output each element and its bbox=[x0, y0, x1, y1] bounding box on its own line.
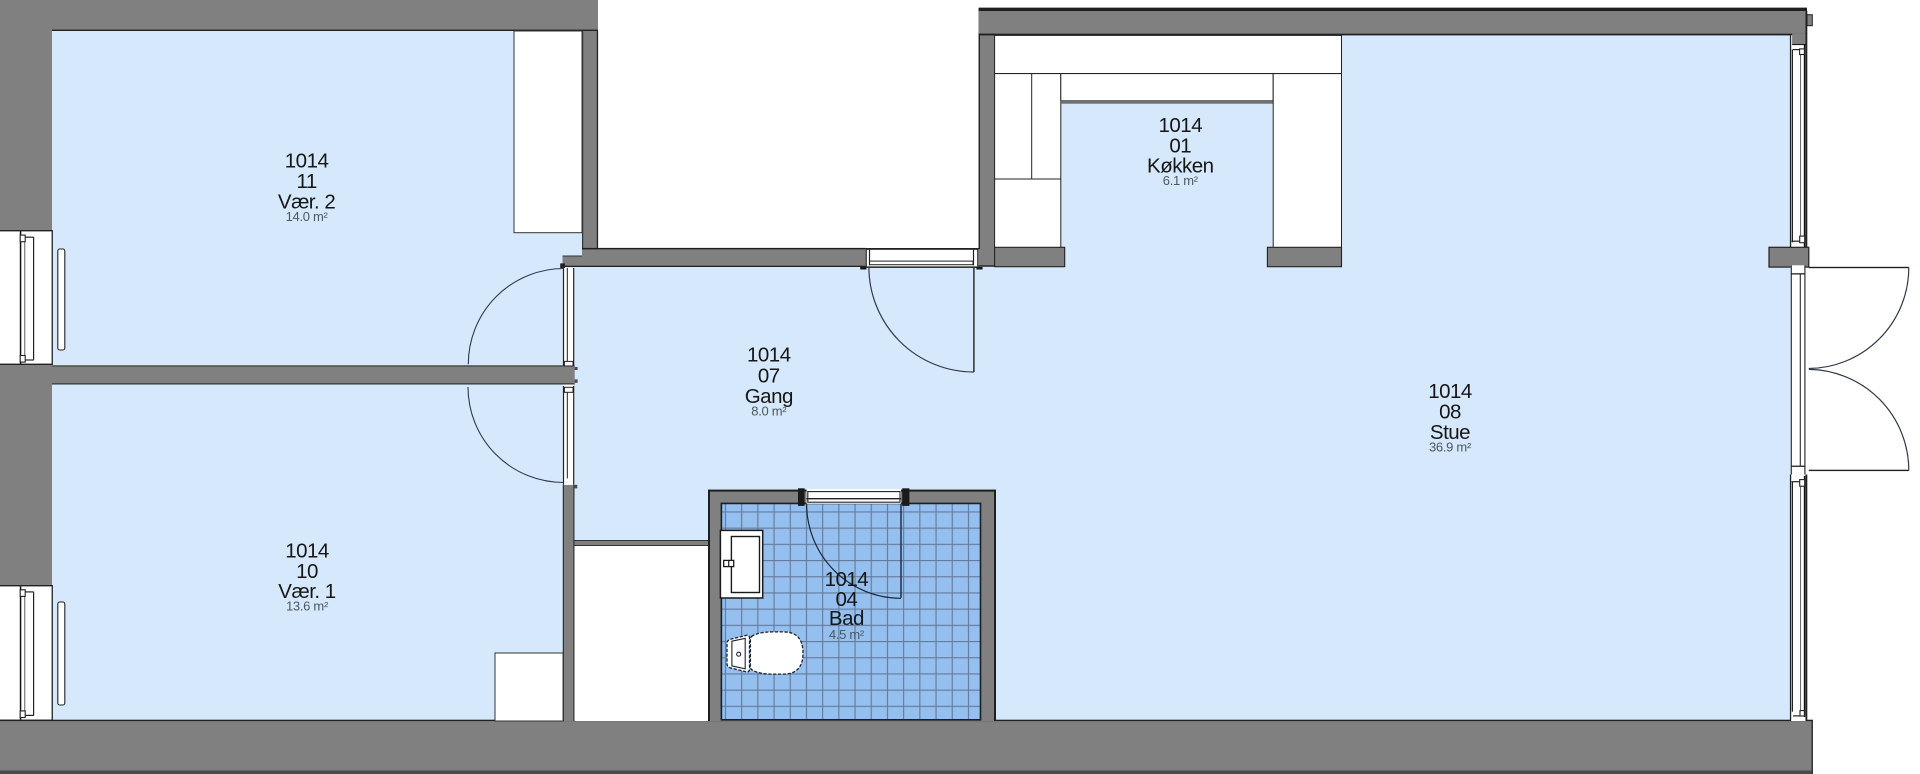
svg-text:36.9 m²: 36.9 m² bbox=[1429, 440, 1472, 455]
svg-text:8.0 m²: 8.0 m² bbox=[751, 403, 787, 418]
svg-text:14.0 m²: 14.0 m² bbox=[286, 209, 329, 224]
svg-text:6.1 m²: 6.1 m² bbox=[1163, 173, 1199, 188]
svg-text:4.5 m²: 4.5 m² bbox=[829, 627, 865, 642]
svg-text:1014: 1014 bbox=[747, 344, 791, 367]
svg-text:13.6 m²: 13.6 m² bbox=[286, 599, 329, 614]
svg-text:1014: 1014 bbox=[285, 149, 329, 172]
